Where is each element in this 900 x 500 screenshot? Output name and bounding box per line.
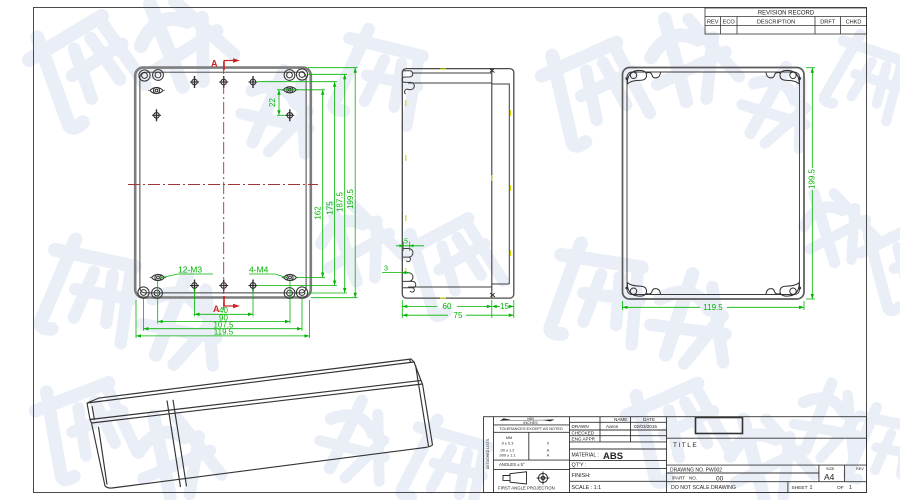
svg-text:FINISH:: FINISH: [572, 473, 591, 479]
svg-text:MM: MM [506, 436, 512, 440]
svg-text:02/03/2015: 02/03/2015 [634, 424, 657, 429]
svg-text:SCALE : 1:1: SCALE : 1:1 [572, 485, 602, 491]
svg-text:1: 1 [849, 485, 852, 491]
svg-text:/PART NO.: /PART NO. [672, 476, 697, 481]
svg-text:5: 5 [404, 237, 408, 246]
svg-text:162: 162 [314, 206, 323, 220]
svg-text:3: 3 [384, 264, 388, 273]
svg-text:MATERIAL :: MATERIAL : [572, 453, 599, 459]
svg-text:ANGLES ± 5°: ANGLES ± 5° [499, 462, 525, 467]
svg-text:A: A [547, 454, 550, 458]
svg-text:ENG APPR: ENG APPR [572, 437, 596, 442]
svg-text:187.5: 187.5 [336, 191, 345, 212]
svg-text:A: A [211, 59, 218, 69]
svg-text:A: A [547, 448, 550, 452]
svg-text:DESCRIPTION: DESCRIPTION [757, 19, 795, 25]
svg-text:175: 175 [326, 201, 335, 215]
svg-text:CHECKED: CHECKED [572, 430, 595, 435]
svg-text:ECO: ECO [723, 19, 736, 25]
svg-text:60: 60 [443, 302, 452, 311]
svg-text:75: 75 [454, 311, 463, 320]
svg-text:DATE: DATE [643, 417, 655, 422]
svg-text:DO NOT SCALE DRAWING: DO NOT SCALE DRAWING [671, 485, 736, 491]
svg-text:12-M3: 12-M3 [178, 265, 202, 275]
svg-text:FIRST ANGLE PROJECTION: FIRST ANGLE PROJECTION [498, 486, 555, 491]
svg-text:SHEET: SHEET [792, 485, 808, 491]
svg-text:REV: REV [856, 467, 864, 471]
svg-text:DRAWN: DRAWN [572, 424, 589, 429]
svg-text:SIZE: SIZE [826, 467, 835, 471]
svg-text:DRFT: DRFT [820, 19, 835, 25]
svg-text:199.5: 199.5 [807, 168, 816, 189]
svg-text:QT'Y :: QT'Y : [572, 463, 587, 469]
svg-text:15: 15 [500, 302, 509, 311]
svg-text:CHKD: CHKD [846, 19, 862, 25]
svg-text:ABS: ABS [603, 451, 623, 462]
svg-text:.00 ± 1.2: .00 ± 1.2 [500, 448, 515, 452]
svg-text:INCHES: INCHES [523, 421, 538, 425]
svg-text:.000 ± 1.1: .000 ± 1.1 [499, 454, 516, 458]
svg-text:22: 22 [268, 98, 277, 107]
svg-text:TOLERANCES EXCEPT AS NOTED: TOLERANCES EXCEPT AS NOTED [499, 426, 563, 431]
svg-text:4-M4: 4-M4 [249, 265, 269, 275]
svg-text:00: 00 [716, 476, 724, 483]
svg-text:REVISION RECORD: REVISION RECORD [758, 11, 815, 17]
svg-text:199.5: 199.5 [346, 188, 355, 209]
svg-text:DRAWING NO. PW002: DRAWING NO. PW002 [670, 468, 722, 474]
svg-text:119.5: 119.5 [703, 303, 723, 312]
svg-text:A4: A4 [824, 472, 835, 482]
svg-text:OF: OF [837, 485, 844, 491]
svg-text:119.5: 119.5 [214, 328, 234, 337]
svg-text:Aaron: Aaron [606, 424, 619, 429]
svg-text:X: X [547, 442, 550, 446]
svg-text:1: 1 [810, 485, 813, 491]
svg-text:.0 ± 0.3: .0 ± 0.3 [501, 442, 514, 446]
svg-text:NAME: NAME [614, 417, 627, 422]
svg-text:TITLE: TITLE [673, 442, 698, 449]
svg-text:DETACHED LISTS: DETACHED LISTS [486, 438, 490, 469]
svg-text:REV: REV [707, 19, 719, 25]
